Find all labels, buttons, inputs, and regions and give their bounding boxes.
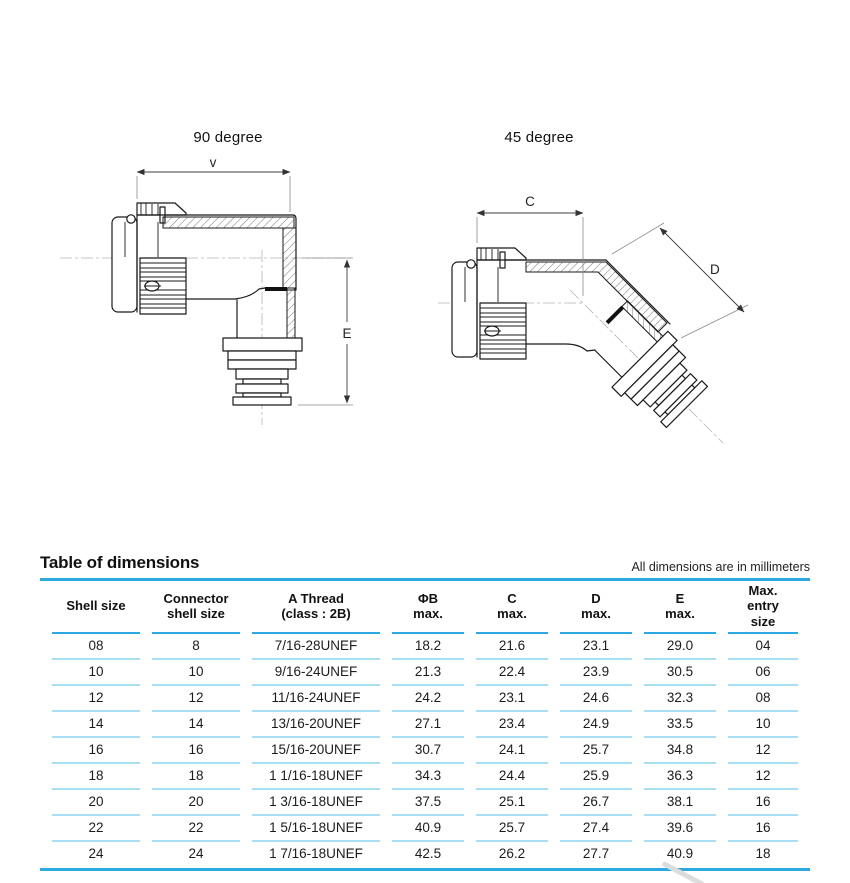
column-header: A Thread(class : 2B) <box>252 581 380 634</box>
drawing-45: C D <box>438 194 748 443</box>
dim-label-E: E <box>342 326 351 341</box>
table-cell: 16 <box>728 790 798 816</box>
table-cell: 13/16-20UNEF <box>252 712 380 738</box>
page: 90 degree 45 degree <box>0 0 850 883</box>
table-cell: 39.6 <box>644 816 716 842</box>
column-header-line: E <box>644 591 716 606</box>
table-cell: 25.7 <box>560 738 632 764</box>
table-cell: 30.7 <box>392 738 464 764</box>
table-row: 141413/16-20UNEF27.123.424.933.510 <box>52 712 798 738</box>
table-cell: 24 <box>52 842 140 868</box>
table-cell: 25.1 <box>476 790 548 816</box>
table-cell: 34.3 <box>392 764 464 790</box>
table-cell: 12 <box>728 764 798 790</box>
dim-label-v: v <box>210 155 217 170</box>
table-row: 121211/16-24UNEF24.223.124.632.308 <box>52 686 798 712</box>
table-cell: 23.4 <box>476 712 548 738</box>
drawing-90: v E <box>60 155 353 425</box>
table-cell: 16 <box>152 738 240 764</box>
table-cell: 36.3 <box>644 764 716 790</box>
column-header-line: size <box>728 614 798 629</box>
table-cell: 32.3 <box>644 686 716 712</box>
column-header-line: C <box>476 591 548 606</box>
table-row: 0887/16-28UNEF18.221.623.129.004 <box>52 634 798 660</box>
dimensions-table: Shell sizeConnectorshell sizeA Thread(cl… <box>40 581 810 868</box>
table-cell: 24.2 <box>392 686 464 712</box>
column-header-line: Shell size <box>52 598 140 613</box>
table-cell: 10 <box>152 660 240 686</box>
column-header: Shell size <box>52 581 140 634</box>
column-header: Dmax. <box>560 581 632 634</box>
table-cell: 18 <box>152 764 240 790</box>
table-cell: 16 <box>52 738 140 764</box>
table-cell: 21.3 <box>392 660 464 686</box>
table-cell: 11/16-24UNEF <box>252 686 380 712</box>
table-cell: 37.5 <box>392 790 464 816</box>
table-cell: 14 <box>152 712 240 738</box>
table-cell: 38.1 <box>644 790 716 816</box>
column-header: Max.entrysize <box>728 581 798 634</box>
table-cell: 10 <box>52 660 140 686</box>
dimension-D: D <box>612 223 748 338</box>
column-header-line: (class : 2B) <box>252 606 380 621</box>
column-header-line: entry <box>728 598 798 613</box>
table-cell: 23.1 <box>560 634 632 660</box>
table-cell: 27.7 <box>560 842 632 868</box>
table-cell: 22 <box>52 816 140 842</box>
table-cell: 1 7/16-18UNEF <box>252 842 380 868</box>
coupling-nut-45 <box>452 248 526 359</box>
table-cell: 08 <box>52 634 140 660</box>
table-cell: 26.2 <box>476 842 548 868</box>
column-header-line: ΦB <box>392 591 464 606</box>
table-body: 0887/16-28UNEF18.221.623.129.00410109/16… <box>52 634 798 868</box>
table-row: 24241 7/16-18UNEF42.526.227.740.918 <box>52 842 798 868</box>
table-cell: 27.1 <box>392 712 464 738</box>
table-cell: 8 <box>152 634 240 660</box>
table-row: 161615/16-20UNEF30.724.125.734.812 <box>52 738 798 764</box>
table-cell: 14 <box>52 712 140 738</box>
table-cell: 1 5/16-18UNEF <box>252 816 380 842</box>
table-cell: 26.7 <box>560 790 632 816</box>
table-cell: 12 <box>728 738 798 764</box>
column-header: ΦBmax. <box>392 581 464 634</box>
table-cell: 12 <box>52 686 140 712</box>
technical-drawings: v E <box>0 0 850 480</box>
column-header-line: max. <box>476 606 548 621</box>
column-header-line: D <box>560 591 632 606</box>
table-cell: 18.2 <box>392 634 464 660</box>
table-cell: 24.4 <box>476 764 548 790</box>
table-row: 18181 1/16-18UNEF34.324.425.936.312 <box>52 764 798 790</box>
table-cell: 30.5 <box>644 660 716 686</box>
table-cell: 27.4 <box>560 816 632 842</box>
table-cell: 20 <box>152 790 240 816</box>
table-cell: 18 <box>52 764 140 790</box>
table-cell: 06 <box>728 660 798 686</box>
table-cell: 9/16-24UNEF <box>252 660 380 686</box>
column-header-line: Connector <box>152 591 240 606</box>
dim-label-C: C <box>525 194 535 209</box>
table-cell: 04 <box>728 634 798 660</box>
table-cell: 12 <box>152 686 240 712</box>
table-cell: 24.1 <box>476 738 548 764</box>
table-row: 22221 5/16-18UNEF40.925.727.439.616 <box>52 816 798 842</box>
table-cell: 42.5 <box>392 842 464 868</box>
column-header-line: Max. <box>728 583 798 598</box>
dimension-C: C <box>477 194 583 296</box>
table-cell: 24 <box>152 842 240 868</box>
table-cell: 23.1 <box>476 686 548 712</box>
table-cell: 24.9 <box>560 712 632 738</box>
table-cell: 7/16-28UNEF <box>252 634 380 660</box>
table-cell: 33.5 <box>644 712 716 738</box>
table-cell: 34.8 <box>644 738 716 764</box>
table-cell: 08 <box>728 686 798 712</box>
dim-label-D: D <box>710 262 720 277</box>
table-cell: 21.6 <box>476 634 548 660</box>
dimension-E: E <box>298 258 353 405</box>
table-header-row: Shell sizeConnectorshell sizeA Thread(cl… <box>52 581 798 634</box>
table-cell: 22.4 <box>476 660 548 686</box>
column-header: Connectorshell size <box>152 581 240 634</box>
column-header-line: max. <box>644 606 716 621</box>
table-cell: 25.7 <box>476 816 548 842</box>
table-cell: 1 1/16-18UNEF <box>252 764 380 790</box>
column-header-line: A Thread <box>252 591 380 606</box>
column-header-line: shell size <box>152 606 240 621</box>
table-cell: 23.9 <box>560 660 632 686</box>
dimensions-table-wrap: Shell sizeConnectorshell sizeA Thread(cl… <box>40 578 810 871</box>
table-units-note: All dimensions are in millimeters <box>480 560 810 574</box>
column-header: Emax. <box>644 581 716 634</box>
table-row: 20201 3/16-18UNEF37.525.126.738.116 <box>52 790 798 816</box>
table-cell: 10 <box>728 712 798 738</box>
table-cell: 15/16-20UNEF <box>252 738 380 764</box>
table-cell: 25.9 <box>560 764 632 790</box>
table-cell: 1 3/16-18UNEF <box>252 790 380 816</box>
table-cell: 20 <box>52 790 140 816</box>
column-header-line: max. <box>392 606 464 621</box>
table-cell: 29.0 <box>644 634 716 660</box>
column-header-line: max. <box>560 606 632 621</box>
column-header: Cmax. <box>476 581 548 634</box>
table-cell: 22 <box>152 816 240 842</box>
table-cell: 40.9 <box>392 816 464 842</box>
cable-entry-90 <box>223 287 302 405</box>
table-row: 10109/16-24UNEF21.322.423.930.506 <box>52 660 798 686</box>
table-cell: 16 <box>728 816 798 842</box>
table-cell: 18 <box>728 842 798 868</box>
table-cell: 40.9 <box>644 842 716 868</box>
table-cell: 24.6 <box>560 686 632 712</box>
table-title: Table of dimensions <box>40 553 199 573</box>
